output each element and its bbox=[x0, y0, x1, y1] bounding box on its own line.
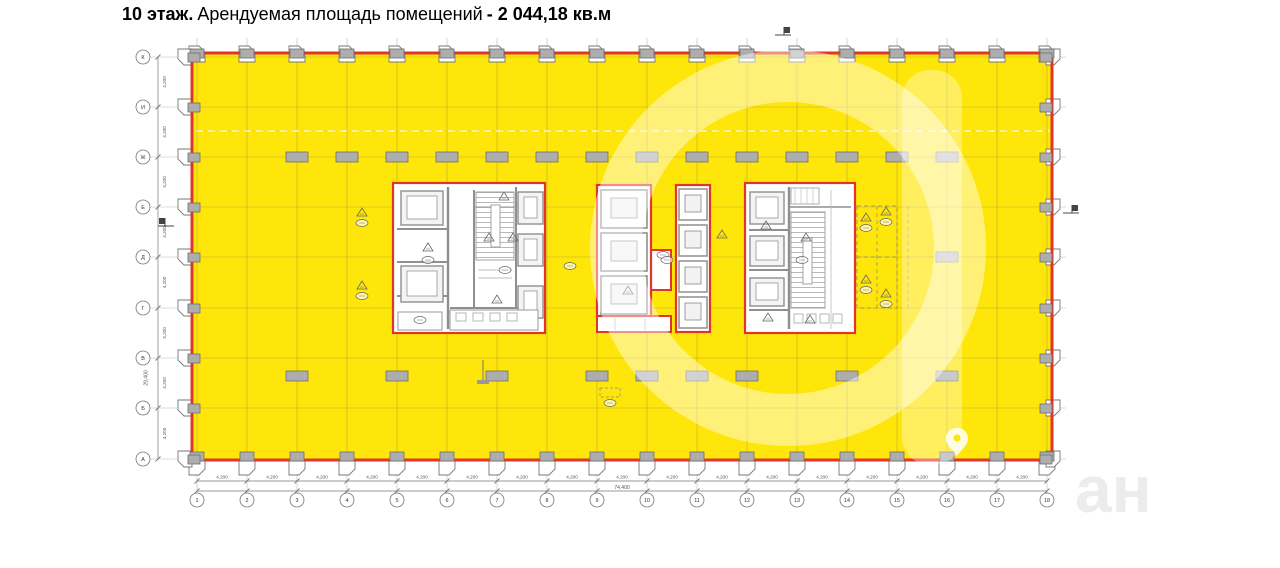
annotation-text: 1 bbox=[196, 498, 199, 504]
annotation-text: 4,200 bbox=[216, 475, 228, 480]
floor-plan-page: 10 этаж.Арендуемая площадь помещений- 2 … bbox=[0, 0, 1280, 568]
annotation-text: 15 bbox=[894, 498, 900, 504]
annotation-text: Ж bbox=[141, 155, 146, 161]
annotation-text: 4,200 bbox=[616, 475, 628, 480]
annotation-text: И bbox=[141, 105, 145, 111]
annotation-text: 4,200 bbox=[516, 475, 528, 480]
annotation-text: 4,200 bbox=[366, 475, 378, 480]
annotation-text: 4,200 bbox=[766, 475, 778, 480]
annotation-text: Д bbox=[141, 255, 145, 261]
annotation-text: 29,400 bbox=[144, 370, 150, 386]
annotation-text: 4,200 bbox=[162, 276, 167, 288]
annotation-text: 4,200 bbox=[716, 475, 728, 480]
annotation-text: 3 bbox=[296, 498, 299, 504]
annotation-text: А bbox=[141, 457, 145, 463]
annotation-text: 4,200 bbox=[416, 475, 428, 480]
annotation-text: Г bbox=[142, 306, 145, 312]
watermark-text: ан bbox=[1075, 452, 1152, 526]
annotation-text: 4,200 bbox=[316, 475, 328, 480]
floor-plan-drawing: 4,2004,2004,2004,2004,2004,2004,2004,200… bbox=[0, 0, 1280, 568]
watermark-brand-text: ан bbox=[1075, 452, 1152, 526]
annotation-text: 4,200 bbox=[266, 475, 278, 480]
annotation-text: 4,200 bbox=[162, 126, 167, 138]
core-left-stair-elevator bbox=[393, 183, 545, 333]
annotation-text: 9 bbox=[596, 498, 599, 504]
annotation-text: 4,200 bbox=[966, 475, 978, 480]
annotation-text: Б bbox=[141, 406, 145, 412]
annotation-text: 16 bbox=[944, 498, 950, 504]
annotation-text: 4 bbox=[346, 498, 349, 504]
annotation-text: 7 bbox=[496, 498, 499, 504]
annotation-text: 4,200 bbox=[162, 427, 167, 439]
annotation-text: 2 bbox=[246, 498, 249, 504]
annotation-text: Е bbox=[141, 205, 145, 211]
annotation-text: В bbox=[141, 356, 145, 362]
annotation-text: 10 bbox=[644, 498, 650, 504]
annotation-text: 4,200 bbox=[162, 76, 167, 88]
annotation-text: 4,200 bbox=[162, 327, 167, 339]
annotation-text: 4,200 bbox=[162, 377, 167, 389]
annotation-text: 13 bbox=[794, 498, 800, 504]
annotation-text: 4,200 bbox=[916, 475, 928, 480]
annotation-text: 17 bbox=[994, 498, 1000, 504]
annotation-text: 4,200 bbox=[162, 226, 167, 238]
annotation-text: 4,200 bbox=[466, 475, 478, 480]
annotation-text: 8 bbox=[546, 498, 549, 504]
annotation-text: 11 bbox=[694, 498, 700, 504]
annotation-text: 14 bbox=[844, 498, 850, 504]
annotation-text: 4,200 bbox=[666, 475, 678, 480]
annotation-text: 6 bbox=[446, 498, 449, 504]
annotation-text: 4,200 bbox=[866, 475, 878, 480]
core-elevator-bank-b bbox=[676, 185, 710, 332]
annotation-text: 18 bbox=[1044, 498, 1050, 504]
annotation-text: 4,200 bbox=[162, 176, 167, 188]
annotation-text: 5 bbox=[396, 498, 399, 504]
annotation-text: 4,200 bbox=[816, 475, 828, 480]
annotation-text: 74,400 bbox=[614, 485, 630, 491]
annotation-text: 4,200 bbox=[566, 475, 578, 480]
annotation-text: 4,200 bbox=[1016, 475, 1028, 480]
annotation-text: 12 bbox=[744, 498, 750, 504]
